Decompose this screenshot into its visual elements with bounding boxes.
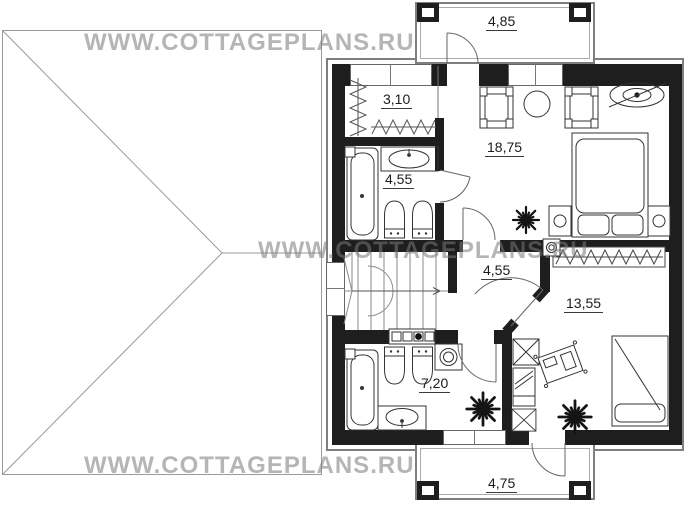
watermark: WWW.COTTAGEPLANS.RU [84, 29, 415, 57]
watermark: WWW.COTTAGEPLANS.RU [84, 452, 415, 480]
toilet-icon [385, 201, 405, 238]
area-label-closet: 3,10 [381, 92, 412, 109]
floor-plan-canvas: 4,85 4,75 3,10 4,55 18,75 4,55 13,55 7,2… [0, 0, 688, 505]
door-icon [475, 278, 543, 326]
bed-double-icon [572, 133, 648, 237]
door-icon [458, 344, 496, 382]
area-label-bathroom-top: 4,55 [383, 172, 414, 189]
ceiling-light-icon [609, 83, 666, 107]
armchair-icon [480, 87, 513, 128]
area-label-bathroom-bottom: 7,20 [419, 376, 450, 393]
bathtub-icon [345, 349, 378, 430]
plant-icon [467, 393, 500, 426]
door-icon [463, 208, 495, 240]
area-label-bedroom-main: 18,75 [485, 140, 524, 157]
door-icon [447, 33, 478, 64]
bathtub-icon [345, 147, 378, 240]
plant-icon [559, 401, 592, 434]
vent-shaft-icon [389, 329, 435, 344]
door-icon [440, 170, 470, 202]
area-label-balcony-top: 4,85 [486, 14, 517, 31]
round-table-icon [524, 91, 550, 117]
toilet-icon [413, 201, 433, 238]
nightstand-icon [648, 206, 670, 236]
door-icon [532, 443, 565, 476]
wardrobe-icon [512, 409, 536, 431]
watermark: WWW.COTTAGEPLANS.RU [258, 237, 589, 265]
area-label-bedroom-second: 13,55 [564, 296, 603, 313]
nightstand-icon [549, 206, 571, 236]
plant-icon [513, 207, 539, 233]
shelf-icon [513, 368, 535, 406]
sink-icon [381, 147, 438, 171]
desk-icon [533, 340, 587, 388]
bed-single-icon [612, 336, 668, 426]
toilet-icon [385, 347, 405, 384]
sink-icon [378, 406, 426, 430]
armchair-icon [565, 87, 598, 128]
area-label-hall: 4,55 [481, 263, 512, 280]
area-label-balcony-bottom: 4,75 [486, 476, 517, 493]
wardrobe-icon [513, 339, 539, 365]
